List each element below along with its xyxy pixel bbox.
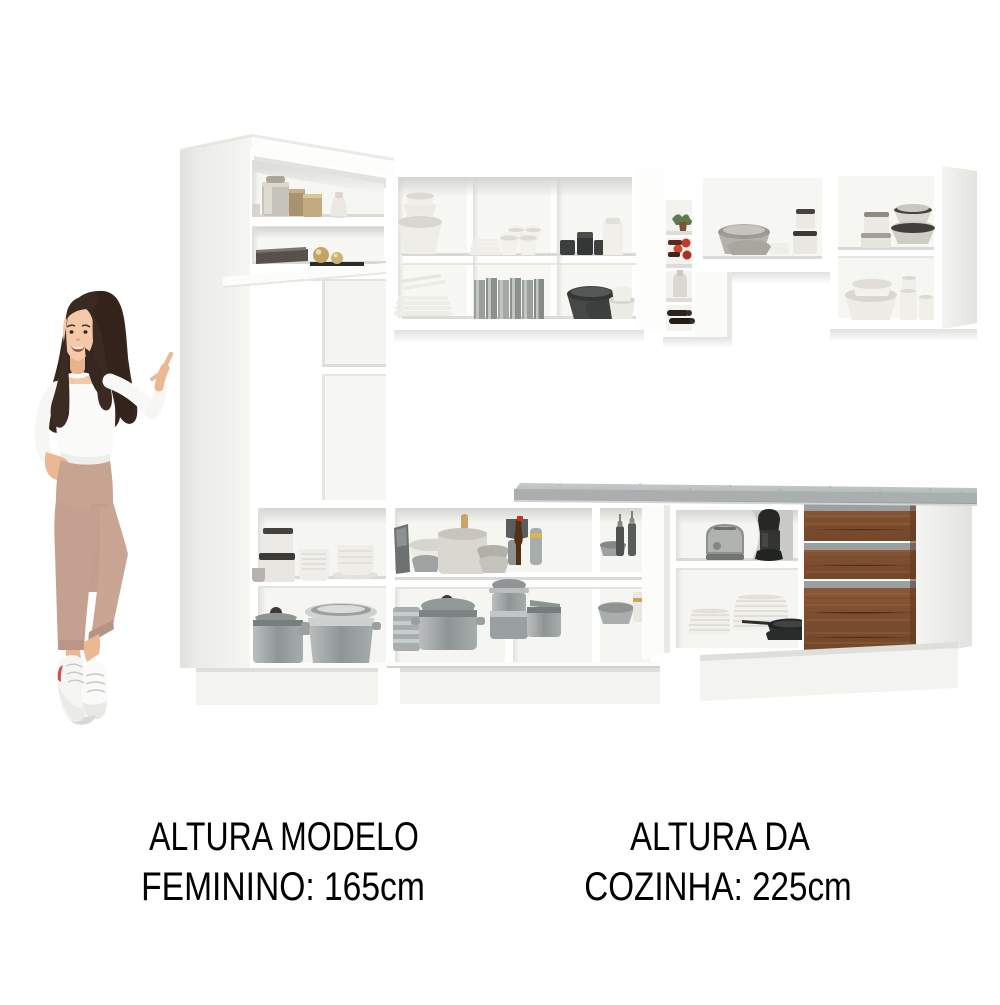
svg-text:FEMININO: 165cm: FEMININO: 165cm	[141, 864, 425, 908]
svg-text:COZINHA: 225cm: COZINHA: 225cm	[584, 864, 851, 909]
svg-text:ALTURA MODELO: ALTURA MODELO	[149, 814, 419, 859]
svg-text:ALTURA DA: ALTURA DA	[630, 814, 810, 859]
